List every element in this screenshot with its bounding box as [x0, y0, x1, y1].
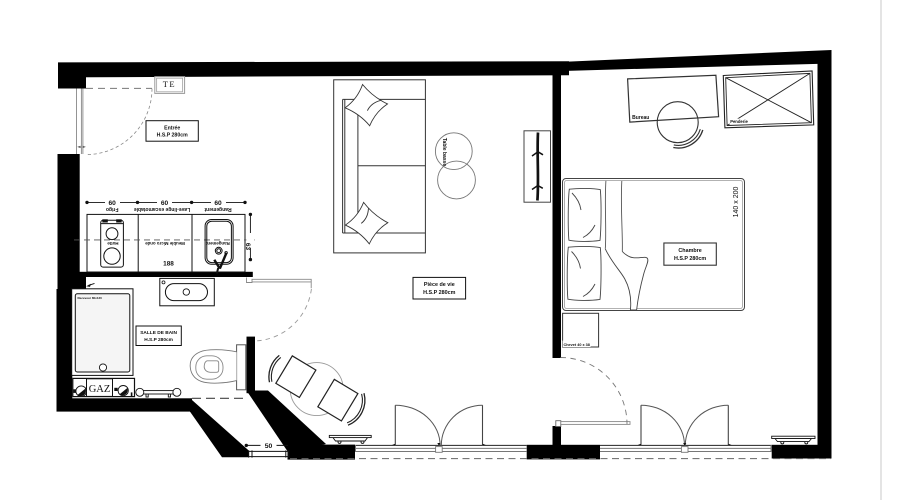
svg-text:H.S.P 280cm: H.S.P 280cm	[157, 133, 188, 139]
svg-text:Rangement: Rangement	[205, 241, 229, 246]
svg-text:188: 188	[163, 261, 174, 268]
svg-text:63: 63	[244, 243, 251, 251]
svg-text:Entrée: Entrée	[164, 125, 180, 131]
svg-text:50: 50	[265, 443, 273, 450]
svg-text:H.S.P 280cm: H.S.P 280cm	[144, 337, 173, 343]
svg-text:GAZ: GAZ	[89, 384, 111, 395]
svg-text:Pièce de vie: Pièce de vie	[424, 282, 455, 288]
svg-text:Table basse: Table basse	[441, 138, 447, 166]
svg-text:Receveur 80x120: Receveur 80x120	[78, 296, 103, 300]
svg-text:Chambre: Chambre	[678, 248, 701, 254]
svg-text:H.S.P 280cm: H.S.P 280cm	[423, 290, 455, 296]
svg-text:Lave-linge escamotable: Lave-linge escamotable	[134, 206, 191, 212]
svg-text:TE: TE	[163, 79, 176, 89]
svg-text:Frigo: Frigo	[106, 206, 119, 212]
svg-text:Hotte: Hotte	[107, 241, 119, 246]
svg-text:140 x 200: 140 x 200	[733, 187, 740, 218]
svg-text:Penderie: Penderie	[730, 119, 748, 124]
svg-text:Chevet 40 x 38: Chevet 40 x 38	[564, 343, 590, 347]
svg-text:H.S.P 280cm: H.S.P 280cm	[674, 256, 706, 262]
svg-text:SALLE DE BAIN: SALLE DE BAIN	[140, 330, 177, 336]
svg-text:Bureau: Bureau	[632, 115, 649, 121]
svg-text:Meuble Micro onde: Meuble Micro onde	[145, 241, 185, 246]
svg-text:Rangement: Rangement	[204, 206, 232, 212]
